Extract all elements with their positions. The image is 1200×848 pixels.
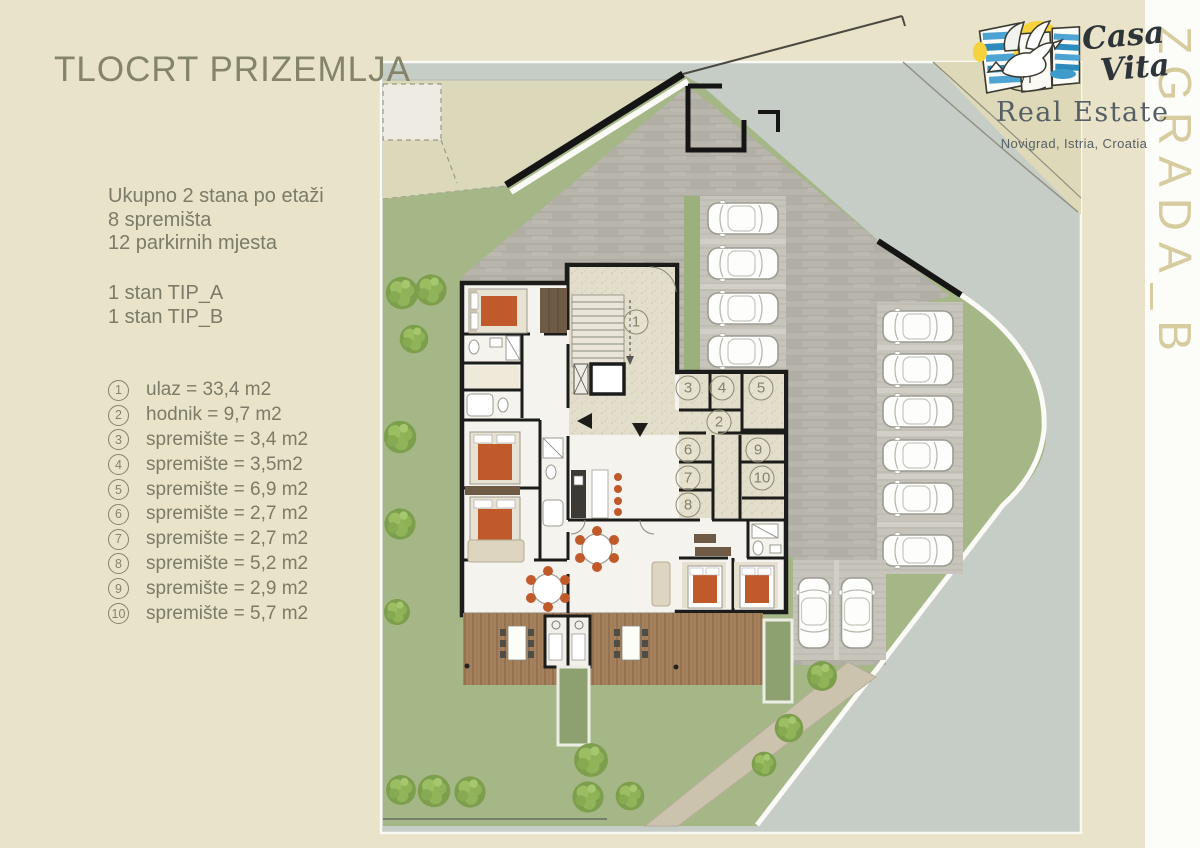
deck-dining-table — [614, 626, 648, 660]
summary-line: Ukupno 2 stana po etaži — [108, 185, 324, 209]
legend-row: 4 spremište = 3,5m2 — [108, 452, 308, 477]
logo: Casa Vita Real Estate Novigrad, Istria, … — [958, 8, 1188, 168]
summary-line: 12 parkirnih mjesta — [108, 232, 324, 256]
legend-row: 8 spremište = 5,2 m2 — [108, 552, 308, 577]
brand-location: Novigrad, Istria, Croatia — [996, 136, 1152, 151]
legend-row: 7 spremište = 2,7 m2 — [108, 527, 308, 552]
legend-row: 6 spremište = 2,7 m2 — [108, 502, 308, 527]
legend-number: 8 — [108, 553, 129, 574]
legend-row: 9 spremište = 2,9 m2 — [108, 576, 308, 601]
left-panel: TLOCRT PRIZEMLJA Ukupno 2 stana po etaži… — [0, 0, 378, 848]
legend: 1 ulaz = 33,4 m2 2 hodnik = 9,7 m2 3 spr… — [108, 378, 308, 626]
legend-number: 9 — [108, 578, 129, 599]
neighbor-house — [383, 84, 441, 140]
pool — [764, 620, 792, 702]
brand-script-line2: Vita — [1099, 47, 1172, 89]
deck-dining-table — [500, 626, 534, 660]
legend-number: 3 — [108, 429, 129, 450]
legend-number: 7 — [108, 529, 129, 550]
legend-row: 1 ulaz = 33,4 m2 — [108, 378, 308, 403]
unit-type-line: 1 stan TIP_A — [108, 282, 223, 306]
parking-column-east — [684, 196, 786, 372]
outdoor-kitchen — [545, 616, 590, 667]
page-background: { "page": { "title": "TLOCRT PRIZEMLJA",… — [0, 0, 1200, 848]
pool — [558, 667, 589, 745]
page-title: TLOCRT PRIZEMLJA — [54, 50, 411, 90]
wardrobe — [540, 288, 567, 333]
storage-wing — [679, 374, 784, 518]
legend-label: hodnik = 9,7 m2 — [146, 404, 282, 426]
unit-types-block: 1 stan TIP_A 1 stan TIP_B — [108, 282, 223, 329]
legend-row: 3 spremište = 3,4 m2 — [108, 428, 308, 453]
legend-label: spremište = 3,4 m2 — [146, 429, 308, 451]
unit-type-line: 1 stan TIP_B — [108, 306, 223, 330]
legend-label: spremište = 5,2 m2 — [146, 553, 308, 575]
legend-number: 10 — [108, 603, 129, 624]
terrace-deck — [463, 613, 763, 685]
brand-name: Real Estate — [996, 97, 1152, 128]
legend-row: 2 hodnik = 9,7 m2 — [108, 403, 308, 428]
legend-label: spremište = 3,5m2 — [146, 454, 303, 476]
legend-number: 6 — [108, 504, 129, 525]
legend-label: spremište = 2,9 m2 — [146, 578, 308, 600]
elevator — [574, 364, 624, 394]
legend-number: 4 — [108, 454, 129, 475]
legend-number: 1 — [108, 380, 129, 401]
legend-row: 5 spremište = 6,9 m2 — [108, 477, 308, 502]
legend-label: spremište = 5,7 m2 — [146, 603, 308, 625]
summary-block: Ukupno 2 stana po etaži 8 spremišta 12 p… — [108, 185, 324, 256]
legend-label: ulaz = 33,4 m2 — [146, 379, 271, 401]
legend-number: 2 — [108, 405, 129, 426]
legend-label: spremište = 6,9 m2 — [146, 479, 308, 501]
parking-column-far-east — [877, 302, 963, 574]
summary-line: 8 spremišta — [108, 209, 324, 233]
legend-label: spremište = 2,7 m2 — [146, 503, 308, 525]
parking-row-south — [793, 560, 886, 660]
legend-row: 10 spremište = 5,7 m2 — [108, 601, 308, 626]
legend-label: spremište = 2,7 m2 — [146, 528, 308, 550]
legend-number: 5 — [108, 479, 129, 500]
